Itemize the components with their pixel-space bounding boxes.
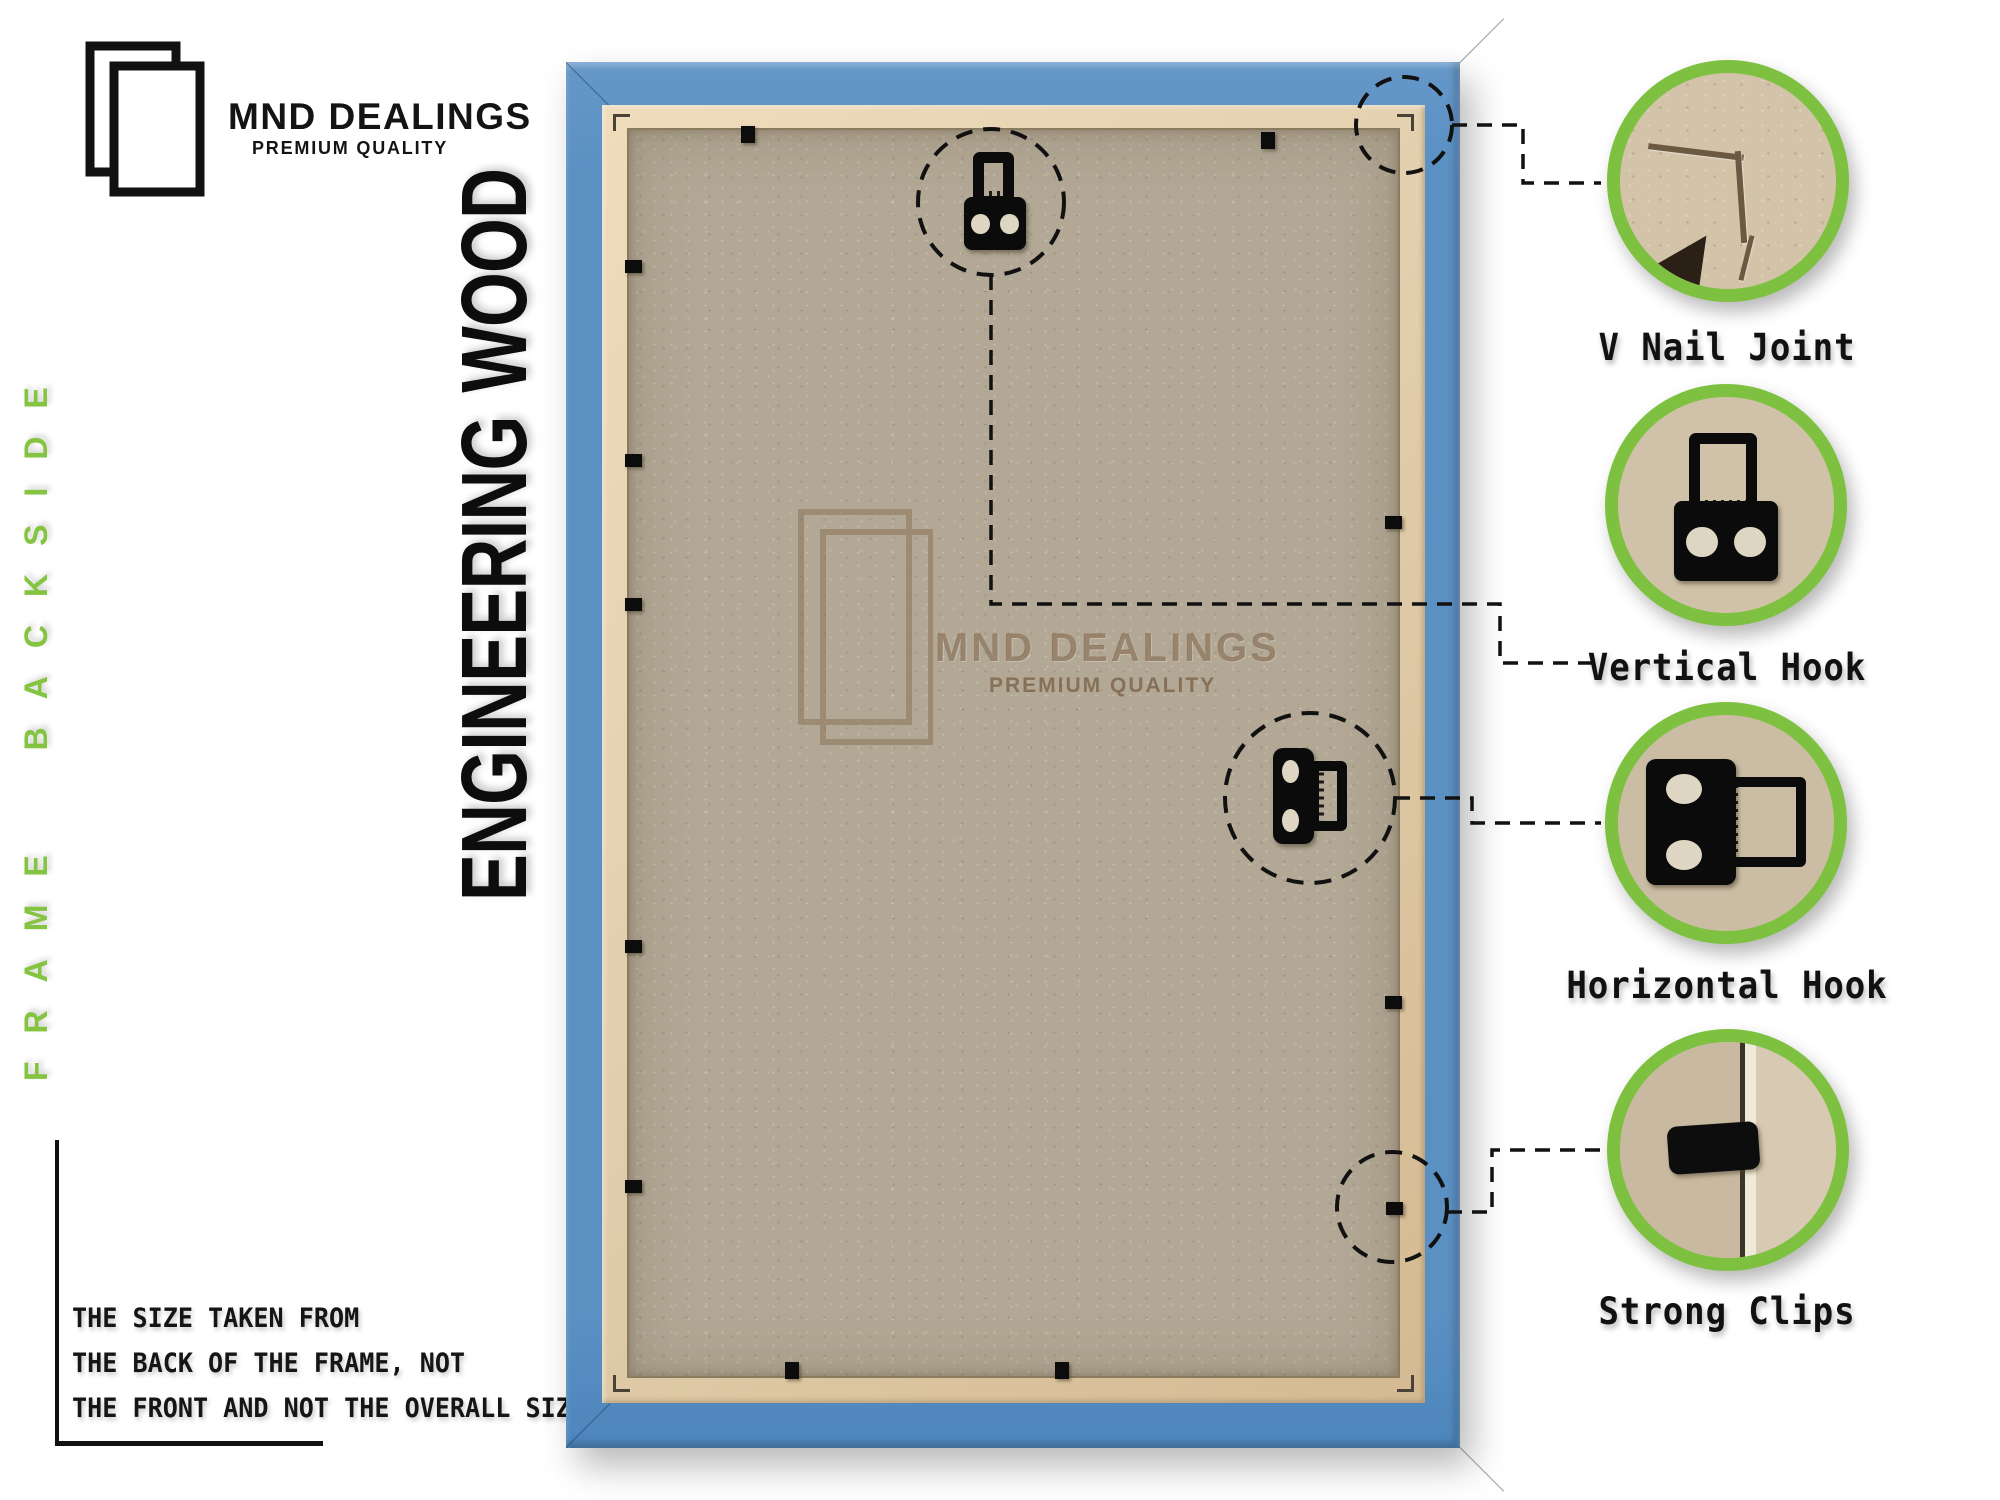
brand-name: MND DEALINGS (228, 96, 532, 138)
callout-label-horizontal-hook: Horizontal Hook (1543, 964, 1911, 1007)
corner-bracket-top-left (613, 114, 630, 131)
callout-photo-strong-clips (1607, 1029, 1849, 1271)
note-bracket-horizontal-line (55, 1441, 323, 1446)
miter-line-bottom-right (1460, 1447, 1505, 1492)
engineering-wood-title: ENGINEERING WOOD (442, 274, 550, 901)
mounting-clip (785, 1362, 799, 1379)
corner-bracket-top-right (1397, 114, 1414, 131)
engineering-wood-title-wrap: ENGINEERING WOOD (446, 205, 546, 970)
callout-label-v-nail-joint: V Nail Joint (1543, 326, 1911, 369)
mounting-clip (625, 454, 642, 467)
mdf-back-board: MND DEALINGS PREMIUM QUALITY (627, 128, 1400, 1378)
corner-bracket-bottom-right (1397, 1375, 1414, 1392)
callout-label-vertical-hook: Vertical Hook (1543, 646, 1911, 689)
frame-backside-photo: MND DEALINGS PREMIUM QUALITY (566, 62, 1460, 1448)
frame-backside-vertical-label: FRAME BACKSIDE (18, 330, 102, 1110)
vertical-hook-on-board (964, 152, 1026, 250)
vertical-hook-large (1674, 433, 1778, 581)
strong-clip-black-clip (1666, 1121, 1760, 1175)
product-infographic: MND DEALINGS PREMIUM QUALITY FRAME BACKS… (0, 0, 2000, 1500)
mounting-clip (625, 598, 642, 611)
v-nail-shadow-wedge (1608, 223, 1707, 302)
miter-line-top-right (1460, 18, 1505, 63)
callout-photo-v-nail-joint (1607, 60, 1849, 302)
note-bracket-vertical-line (55, 1140, 59, 1445)
size-note: THE SIZE TAKEN FROM THE BACK OF THE FRAM… (72, 1296, 601, 1431)
mounting-clip (741, 126, 755, 143)
v-nail-groove-vertical (1735, 151, 1747, 243)
mounting-clip (1385, 516, 1402, 529)
horizontal-hook-on-board (1273, 748, 1347, 844)
mounting-clip-circled (1386, 1202, 1403, 1215)
callout-photo-vertical-hook (1605, 384, 1847, 626)
mounting-clip (1055, 1362, 1069, 1379)
size-note-line1: THE SIZE TAKEN FROM (72, 1296, 601, 1341)
callout-label-strong-clips: Strong Clips (1543, 1290, 1911, 1333)
mounting-clip (1385, 996, 1402, 1009)
corner-bracket-bottom-left (613, 1375, 630, 1392)
size-note-line2: THE BACK OF THE FRAME, NOT (72, 1341, 601, 1386)
mounting-clip (625, 260, 642, 273)
size-note-line3: THE FRONT AND NOT THE OVERALL SIZE. (72, 1386, 601, 1431)
mounting-clip (625, 1180, 642, 1193)
v-nail-groove-horizontal (1648, 143, 1744, 161)
mounting-clip (1261, 132, 1275, 149)
connector-v-nail-joint (1452, 125, 1601, 183)
connector-strong-clips (1447, 1150, 1601, 1212)
miter-line-bottom-left (566, 1403, 611, 1448)
watermark-frames-logo (793, 504, 933, 774)
watermark-name: MND DEALINGS (935, 626, 1280, 671)
mounting-clip (625, 940, 642, 953)
callout-photo-horizontal-hook (1605, 702, 1847, 944)
strong-clip-lip-side (1756, 1042, 1836, 1258)
watermark-tagline: PREMIUM QUALITY (989, 674, 1216, 698)
horizontal-hook-large (1646, 759, 1806, 885)
miter-line-top-left (566, 62, 611, 107)
brand-tagline: PREMIUM QUALITY (252, 138, 448, 159)
brand-frames-logo-icon (84, 40, 214, 210)
